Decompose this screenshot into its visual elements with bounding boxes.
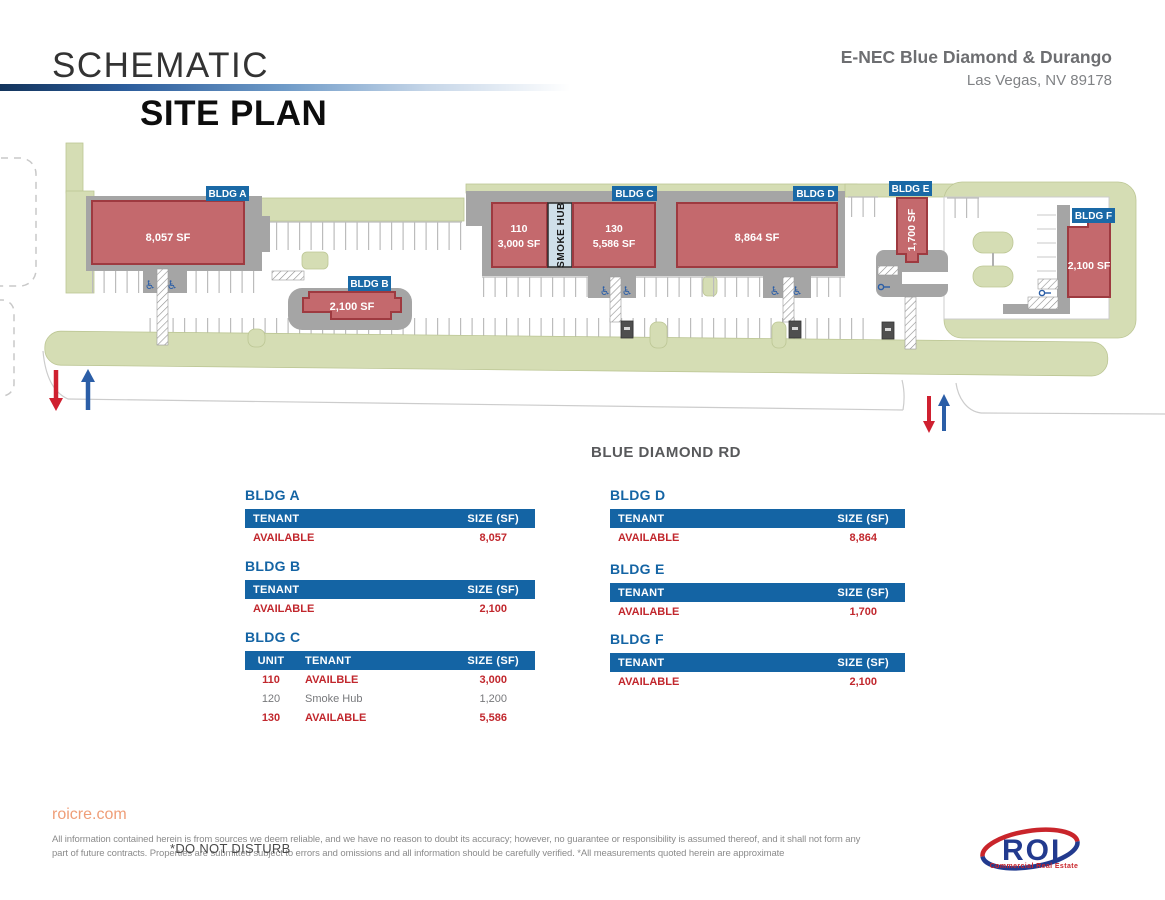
col-size: SIZE (SF) [429, 513, 535, 525]
unit-cell: 130 [245, 712, 297, 724]
tenant-cell: AVAILABLE [610, 676, 787, 688]
svg-text:♿: ♿ [167, 278, 178, 292]
svg-text:♿: ♿ [600, 284, 611, 298]
col-size: SIZE (SF) [429, 655, 535, 667]
tenant-cell: AVAILABLE [245, 603, 417, 615]
col-size: SIZE (SF) [799, 587, 905, 599]
col-tenant: TENANT [610, 657, 799, 669]
table-bldg-c: BLDG C UNIT TENANT SIZE (SF) 110 AVAILBL… [245, 629, 535, 727]
building-b-size: 2,100 SF [330, 301, 375, 313]
col-size: SIZE (SF) [429, 584, 535, 596]
building-f-size: 2,100 SF [1068, 260, 1111, 272]
table-header: TENANT SIZE (SF) [610, 509, 905, 528]
table-header: TENANT SIZE (SF) [610, 583, 905, 602]
unit-110-number: 110 [511, 223, 528, 235]
size-cell: 1,700 [787, 606, 905, 618]
building-c-unit-130[interactable] [573, 203, 655, 267]
tenant-cell: Smoke Hub [297, 693, 417, 705]
table-row: AVAILABLE 8,057 [245, 528, 535, 547]
table-bldg-f: BLDG F TENANT SIZE (SF) AVAILABLE 2,100 [610, 631, 905, 691]
tenant-cell: AVAILABLE [245, 532, 417, 544]
website-link[interactable]: roicre.com [52, 806, 127, 824]
site-plan-flyer: SCHEMATIC SITE PLAN E-NEC Blue Diamond &… [0, 0, 1165, 900]
building-e-size: 1,700 SF [906, 208, 918, 251]
table-title: BLDG E [610, 561, 905, 577]
tenant-cell: AVAILABLE [610, 532, 787, 544]
table-row: AVAILABLE 1,700 [610, 602, 905, 621]
svg-text:♿: ♿ [622, 284, 633, 298]
tag-bldg-e: BLDG E [892, 184, 930, 195]
ingress-arrow-right [938, 394, 950, 431]
egress-arrow-left [49, 370, 63, 411]
unit-cell: 110 [245, 674, 297, 686]
unit-cell: 120 [245, 693, 297, 705]
tenant-cell: AVAILBLE [297, 674, 417, 686]
tag-bldg-b: BLDG B [350, 279, 388, 290]
table-row: 110 AVAILBLE 3,000 [245, 670, 535, 689]
size-cell: 1,200 [417, 693, 535, 705]
table-title: BLDG C [245, 629, 535, 645]
smoke-hub-label: SMOKE HUB [556, 202, 567, 268]
property-location: Las Vegas, NV 89178 [841, 72, 1112, 89]
size-cell: 3,000 [417, 674, 535, 686]
table-title: BLDG A [245, 487, 535, 503]
frontage-landscape-band [45, 331, 1108, 376]
table-title: BLDG B [245, 558, 535, 574]
unit-110-size: 3,000 SF [498, 238, 541, 250]
ingress-arrow-left [81, 369, 95, 410]
page-title-line2: SITE PLAN [140, 94, 327, 134]
tag-bldg-a: BLDG A [209, 189, 247, 200]
table-bldg-a: BLDG A TENANT SIZE (SF) AVAILABLE 8,057 [245, 487, 535, 547]
col-size: SIZE (SF) [799, 513, 905, 525]
header-gradient-divider [0, 84, 570, 91]
page-title-line1: SCHEMATIC [52, 46, 269, 86]
col-tenant: TENANT [245, 513, 429, 525]
table-row: AVAILABLE 8,864 [610, 528, 905, 547]
property-name: E-NEC Blue Diamond & Durango [841, 47, 1112, 68]
site-plan-drawing: 8,057 SF 2,100 SF 110 3,000 SF SMOKE HUB… [0, 140, 1165, 472]
tag-bldg-d: BLDG D [796, 189, 834, 200]
tag-bldg-c: BLDG C [615, 189, 653, 200]
col-unit: UNIT [245, 655, 297, 667]
table-bldg-e: BLDG E TENANT SIZE (SF) AVAILABLE 1,700 [610, 561, 905, 621]
do-not-disturb-note: *DO NOT DISTURB [170, 841, 291, 856]
tenant-cell: AVAILABLE [297, 712, 417, 724]
offsite-parcel-outline [0, 158, 36, 286]
table-title: BLDG D [610, 487, 905, 503]
col-size: SIZE (SF) [799, 657, 905, 669]
svg-text:♿: ♿ [145, 278, 156, 292]
size-cell: 8,057 [417, 532, 535, 544]
svg-text:♿: ♿ [770, 284, 781, 298]
building-a-size: 8,057 SF [146, 232, 191, 244]
col-tenant: TENANT [297, 655, 429, 667]
col-tenant: TENANT [245, 584, 429, 596]
table-row: 120 Smoke Hub 1,200 [245, 689, 535, 708]
table-row: 130 AVAILABLE 5,586 [245, 708, 535, 727]
table-row: AVAILABLE 2,100 [245, 599, 535, 618]
size-cell: 5,586 [417, 712, 535, 724]
tag-bldg-f: BLDG F [1075, 211, 1112, 222]
building-d-size: 8,864 SF [735, 232, 780, 244]
roi-logo: ROI Commercial Real Estate [972, 816, 1094, 878]
property-header: E-NEC Blue Diamond & Durango Las Vegas, … [841, 47, 1112, 89]
building-c-unit-110[interactable] [492, 203, 547, 267]
egress-arrow-right [923, 396, 935, 433]
roi-logo-subtext: Commercial Real Estate [990, 863, 1079, 870]
table-bldg-d: BLDG D TENANT SIZE (SF) AVAILABLE 8,864 [610, 487, 905, 547]
table-row: AVAILABLE 2,100 [610, 672, 905, 691]
table-header: TENANT SIZE (SF) [245, 509, 535, 528]
table-header: TENANT SIZE (SF) [245, 580, 535, 599]
table-bldg-b: BLDG B TENANT SIZE (SF) AVAILABLE 2,100 [245, 558, 535, 618]
offsite-parcel-outline [0, 300, 14, 396]
size-cell: 2,100 [787, 676, 905, 688]
table-title: BLDG F [610, 631, 905, 647]
size-cell: 8,864 [787, 532, 905, 544]
col-tenant: TENANT [610, 587, 799, 599]
table-header: TENANT SIZE (SF) [610, 653, 905, 672]
unit-130-number: 130 [605, 223, 623, 235]
street-label: BLUE DIAMOND RD [591, 444, 741, 461]
building-f[interactable] [1068, 220, 1110, 297]
col-tenant: TENANT [610, 513, 799, 525]
size-cell: 2,100 [417, 603, 535, 615]
table-header: UNIT TENANT SIZE (SF) [245, 651, 535, 670]
svg-text:♿: ♿ [792, 284, 803, 298]
tenant-cell: AVAILABLE [610, 606, 787, 618]
unit-130-size: 5,586 SF [593, 238, 636, 250]
